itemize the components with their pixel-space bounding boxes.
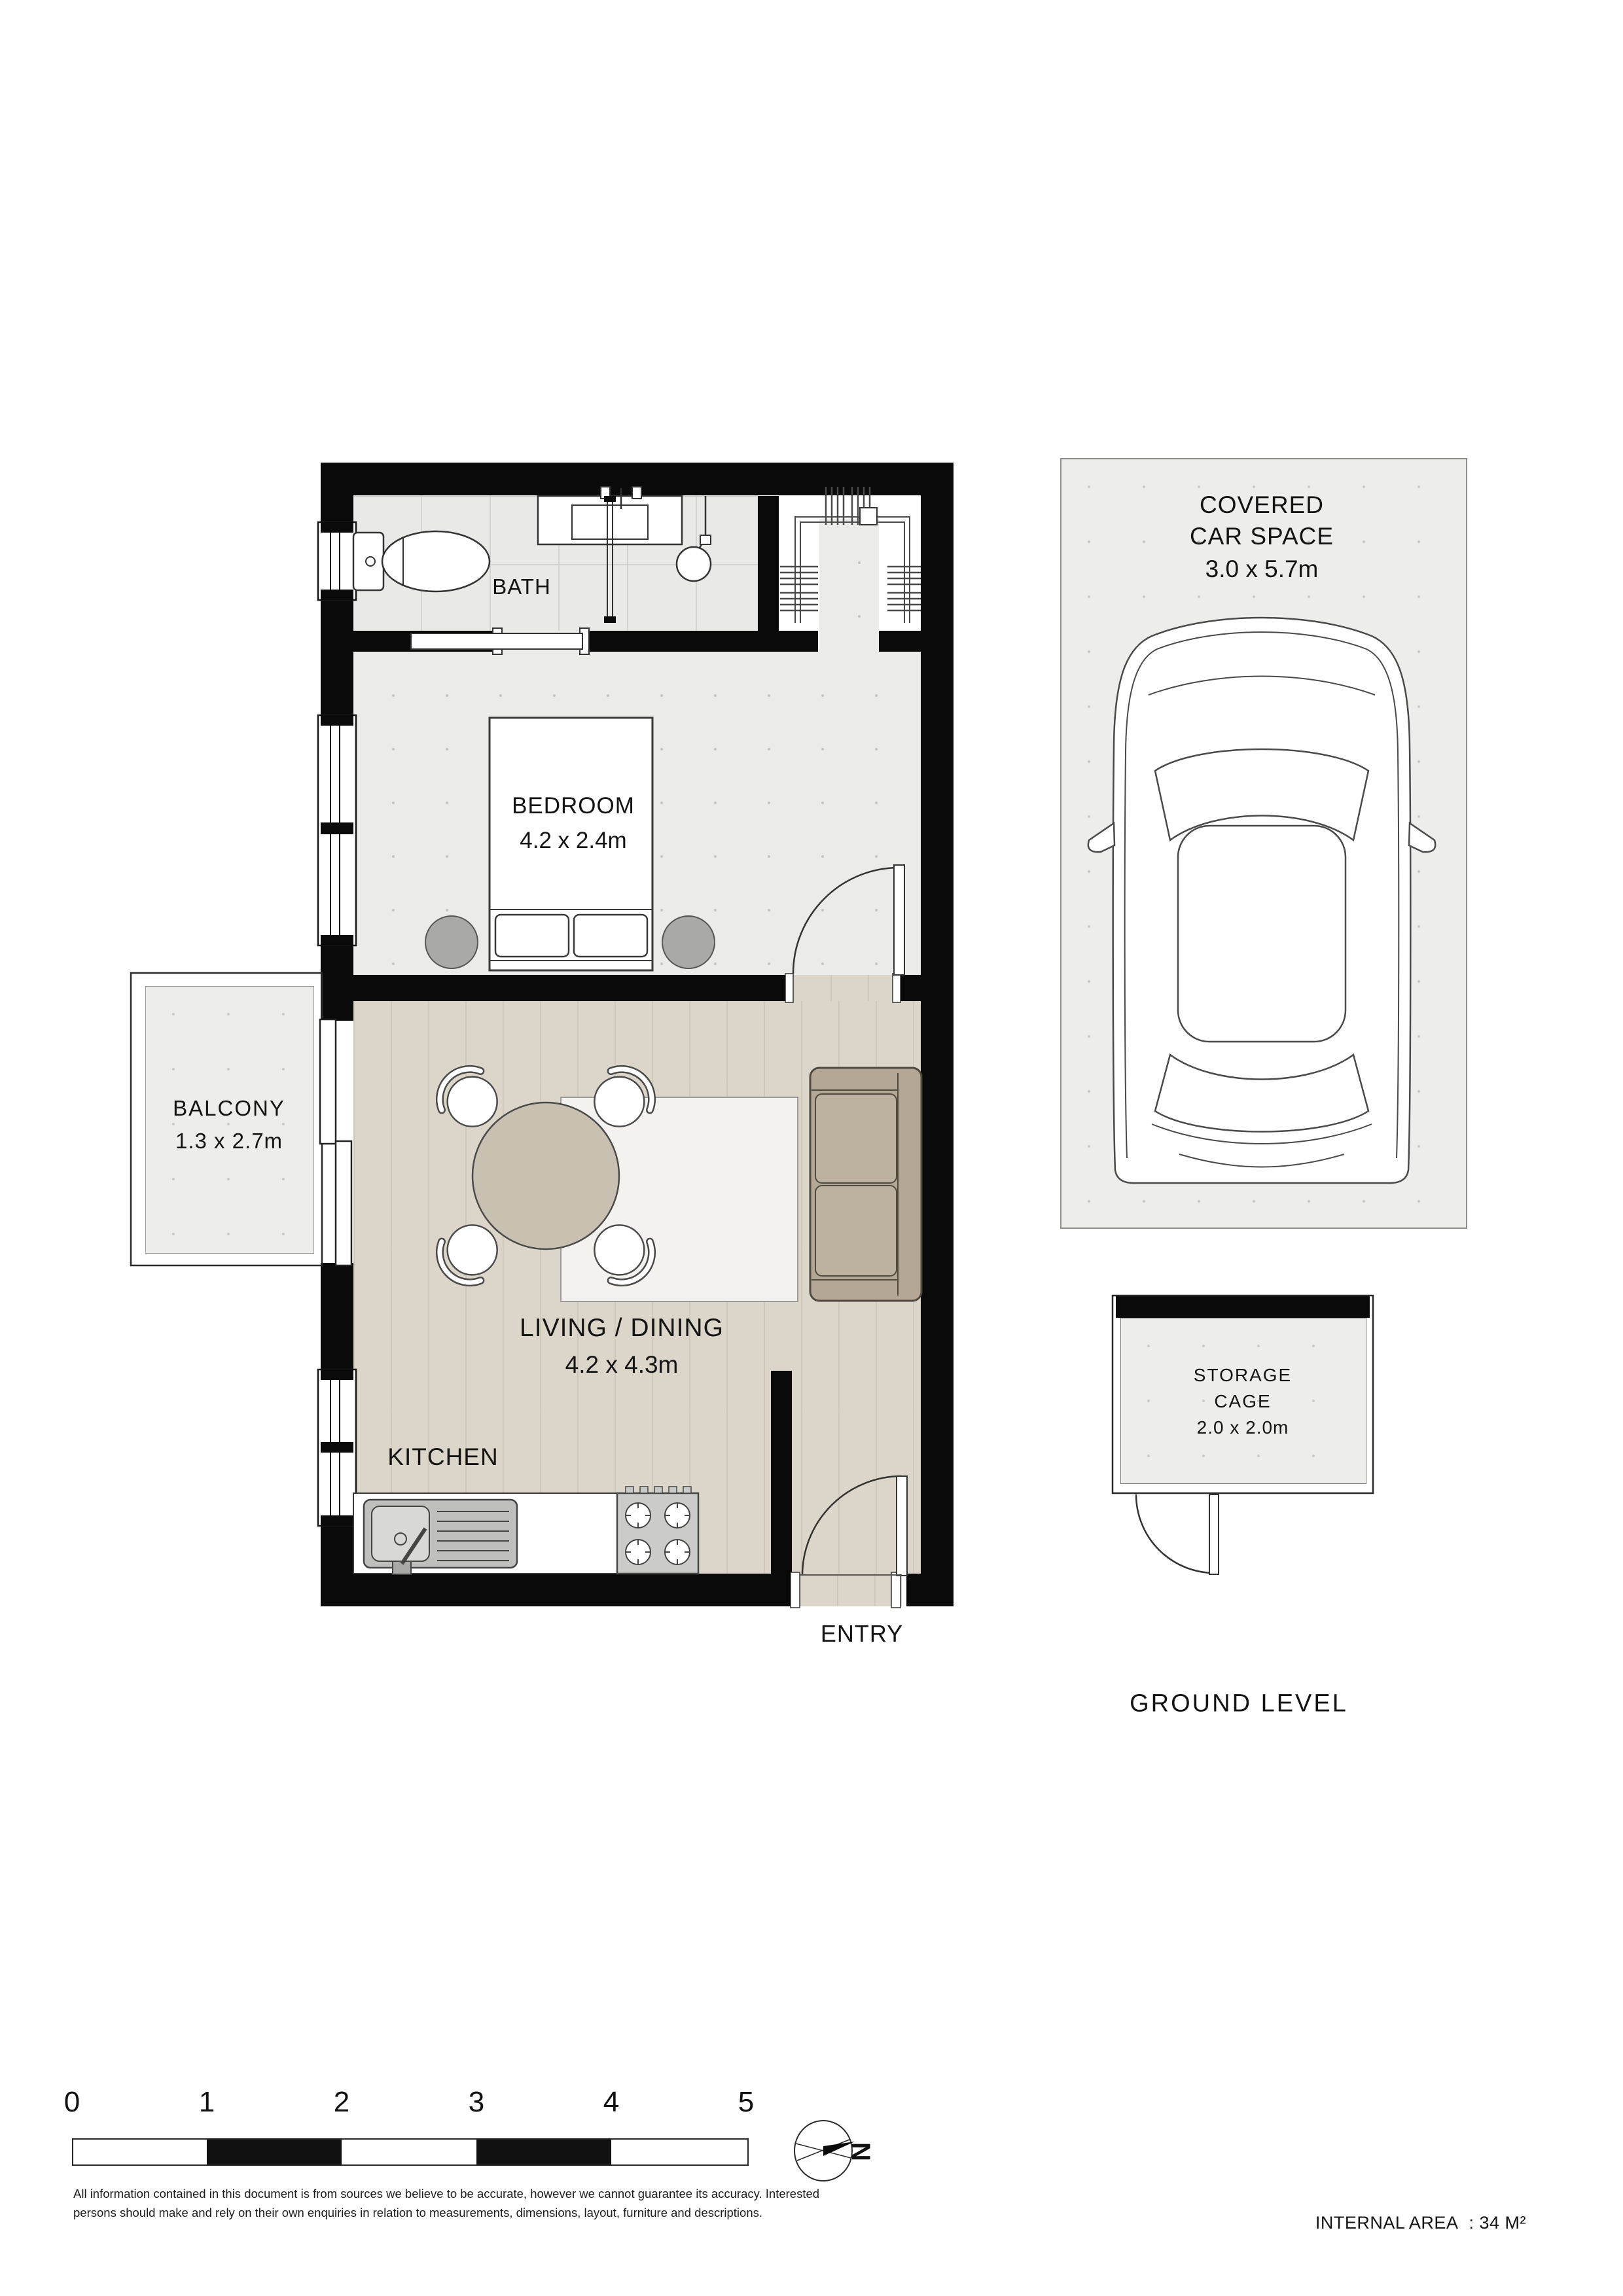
wall-entry-stub — [771, 1371, 792, 1574]
wall-bath-bedroom-2 — [589, 631, 818, 652]
entry-doorway-floor — [800, 1574, 902, 1606]
scale-tick-2: 2 — [334, 2086, 349, 2119]
scale-tick-5: 5 — [738, 2086, 754, 2119]
balcony-label: BALCONY — [173, 1096, 285, 1121]
scale-tick-1: 1 — [199, 2086, 215, 2119]
bedroom-label: BEDROOM — [512, 793, 635, 819]
balcony-sliding-door — [320, 1019, 351, 1265]
wall-left-3 — [321, 944, 353, 1021]
wall-bedroom-living-2 — [901, 975, 921, 1001]
internal-area: INTERNAL AREA : 34 M² — [1211, 2213, 1526, 2233]
scale-tick-4: 4 — [603, 2086, 619, 2119]
wardrobe-walkway-floor — [819, 519, 879, 652]
kitchen-label: KITCHEN — [387, 1443, 498, 1471]
storage-label-line1: STORAGE — [1194, 1365, 1292, 1386]
scale-bar — [72, 2138, 749, 2166]
living-dining-label: LIVING / DINING — [520, 1314, 724, 1343]
wall-storage-top — [1116, 1296, 1370, 1318]
storage-dimensions: 2.0 x 2.0m — [1197, 1417, 1289, 1438]
window-bedroom — [318, 715, 356, 945]
internal-area-label: INTERNAL AREA — [1315, 2213, 1459, 2233]
car-space-dimensions: 3.0 x 5.7m — [1205, 556, 1319, 583]
window-living — [318, 1369, 356, 1526]
wall-bedroom-living-1 — [353, 975, 785, 1001]
bedroom-floor — [353, 652, 921, 975]
disclaimer-line-1: All information contained in this docume… — [73, 2184, 819, 2203]
storage-label-line2: CAGE — [1214, 1391, 1271, 1412]
entry-label: ENTRY — [821, 1620, 903, 1648]
balcony-dimensions: 1.3 x 2.7m — [175, 1129, 283, 1154]
car-space-label-line1: COVERED — [1200, 491, 1324, 519]
car-space-label-line2: CAR SPACE — [1190, 523, 1334, 550]
compass-north-letter: N — [846, 2142, 875, 2161]
bath-doorway-floor — [494, 631, 589, 652]
bath-label: BATH — [492, 574, 551, 599]
wall-bath-right — [758, 496, 779, 631]
internal-area-value: : 34 M² — [1469, 2213, 1526, 2233]
living-dining-dimensions: 4.2 x 4.3m — [565, 1351, 679, 1379]
scale-tick-3: 3 — [469, 2086, 484, 2119]
ground-level-label: GROUND LEVEL — [1130, 1690, 1348, 1718]
bedroom-dimensions: 4.2 x 2.4m — [520, 828, 626, 854]
scale-tick-0: 0 — [64, 2086, 80, 2119]
wall-left-1 — [321, 463, 353, 523]
wall-left-2 — [321, 599, 353, 716]
wall-left-4 — [321, 1263, 353, 1371]
disclaimer-text: All information contained in this docume… — [73, 2184, 819, 2222]
scale-bar-segment — [476, 2140, 611, 2164]
wall-bath-bedroom-1 — [353, 631, 494, 652]
wall-bottom-1 — [321, 1574, 792, 1606]
living-rug — [560, 1097, 798, 1302]
bedroom-doorway-floor — [793, 975, 893, 1001]
wall-right — [921, 463, 954, 1606]
floor-plan-page: BATH BEDROOM 4.2 x 2.4m BALCONY 1.3 x 2.… — [0, 0, 1623, 2296]
wall-bath-bedroom-3 — [879, 631, 921, 652]
wall-top — [321, 463, 954, 495]
scale-bar-segment — [207, 2140, 342, 2164]
window-bath — [318, 522, 356, 600]
bath-floor — [353, 495, 758, 631]
disclaimer-line-2: persons should make and rely on their ow… — [73, 2203, 819, 2222]
wall-bottom-2 — [906, 1574, 954, 1606]
